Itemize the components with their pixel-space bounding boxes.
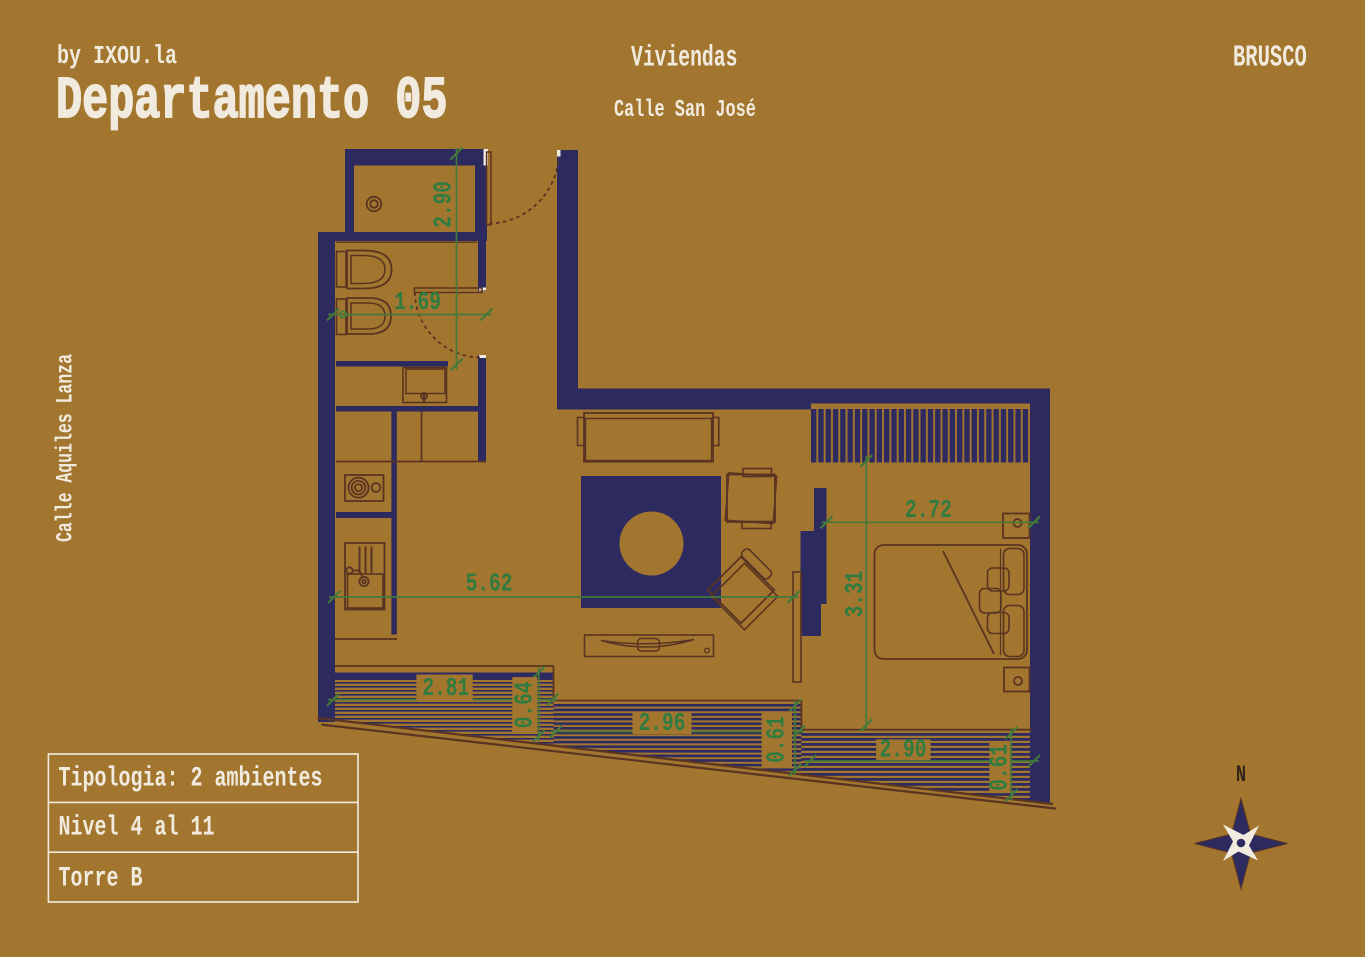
svg-text:Calle Aquiles Lanza: Calle Aquiles Lanza (53, 354, 79, 542)
svg-text:0.61: 0.61 (985, 744, 1014, 791)
svg-text:Tipologia: 2 ambientes: Tipologia: 2 ambientes (59, 764, 323, 795)
svg-text:2.90: 2.90 (429, 181, 458, 228)
svg-text:Departamento 05: Departamento 05 (56, 68, 447, 135)
svg-text:N: N (1236, 763, 1246, 789)
svg-text:Viviendas: Viviendas (631, 41, 737, 75)
svg-text:Nivel 4 al 11: Nivel 4 al 11 (59, 813, 215, 844)
svg-text:1.69: 1.69 (394, 287, 441, 316)
svg-text:3.31: 3.31 (841, 571, 870, 618)
svg-text:2.90: 2.90 (880, 735, 927, 764)
svg-text:Torre B: Torre B (59, 864, 143, 895)
svg-text:0.64: 0.64 (510, 681, 539, 728)
svg-text:Calle San José: Calle San José (614, 98, 756, 124)
svg-text:2.81: 2.81 (422, 674, 469, 703)
svg-text:by IXOU.la: by IXOU.la (57, 42, 177, 71)
svg-text:0.61: 0.61 (762, 716, 791, 763)
svg-text:2.96: 2.96 (639, 708, 686, 737)
svg-text:BRUSCO: BRUSCO (1233, 40, 1307, 75)
svg-text:2.72: 2.72 (905, 495, 952, 524)
svg-text:5.62: 5.62 (466, 569, 513, 598)
